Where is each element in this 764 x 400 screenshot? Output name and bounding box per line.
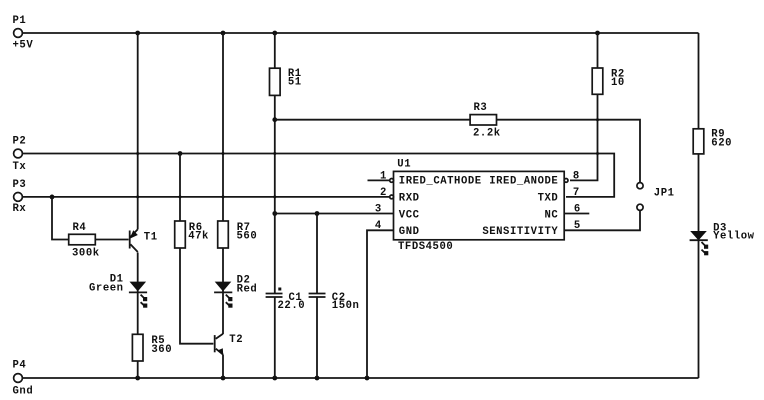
svg-text:10: 10 [611,77,625,89]
svg-text:Red: Red [237,283,258,295]
svg-text:SENSITIVITY: SENSITIVITY [482,226,558,238]
svg-text:TXD: TXD [538,193,559,205]
svg-text:620: 620 [711,137,732,149]
svg-text:1: 1 [380,171,387,183]
svg-text:P3: P3 [13,179,27,191]
svg-text:P1: P1 [13,15,27,27]
svg-text:47k: 47k [188,230,209,242]
svg-text:T1: T1 [144,231,158,243]
svg-text:+5V: +5V [13,40,34,52]
svg-text:U1: U1 [397,158,411,170]
svg-text:P2: P2 [13,136,27,148]
svg-text:2: 2 [380,187,387,199]
svg-text:VCC: VCC [399,209,420,221]
svg-text:3: 3 [375,203,382,215]
svg-text:GND: GND [399,226,420,238]
svg-text:8: 8 [573,170,580,182]
svg-text:JP1: JP1 [654,187,675,199]
svg-text:TFDS4500: TFDS4500 [398,241,453,253]
svg-text:6: 6 [574,203,581,215]
svg-text:51: 51 [288,77,302,89]
svg-text:Rx: Rx [13,203,27,215]
svg-text:P4: P4 [13,359,27,371]
svg-text:R3: R3 [474,102,488,114]
svg-text:360: 360 [151,344,172,356]
svg-text:5: 5 [574,220,581,232]
svg-text:Gnd: Gnd [13,386,34,398]
svg-text:560: 560 [237,231,258,243]
svg-text:R4: R4 [73,222,87,234]
svg-text:IRED_CATHODE: IRED_CATHODE [399,176,482,188]
svg-text:Yellow: Yellow [713,230,755,242]
svg-text:300k: 300k [72,248,100,260]
svg-text:150n: 150n [332,300,360,312]
svg-text:7: 7 [573,187,580,199]
svg-text:RXD: RXD [399,193,420,205]
svg-text:22.0: 22.0 [278,300,306,312]
svg-text:2.2k: 2.2k [473,128,501,140]
svg-text:NC: NC [544,209,558,221]
svg-text:T2: T2 [229,334,243,346]
svg-text:Tx: Tx [13,161,27,173]
svg-text:IRED_ANODE: IRED_ANODE [489,176,558,188]
svg-text:Green: Green [89,283,124,295]
svg-text:4: 4 [375,220,382,232]
